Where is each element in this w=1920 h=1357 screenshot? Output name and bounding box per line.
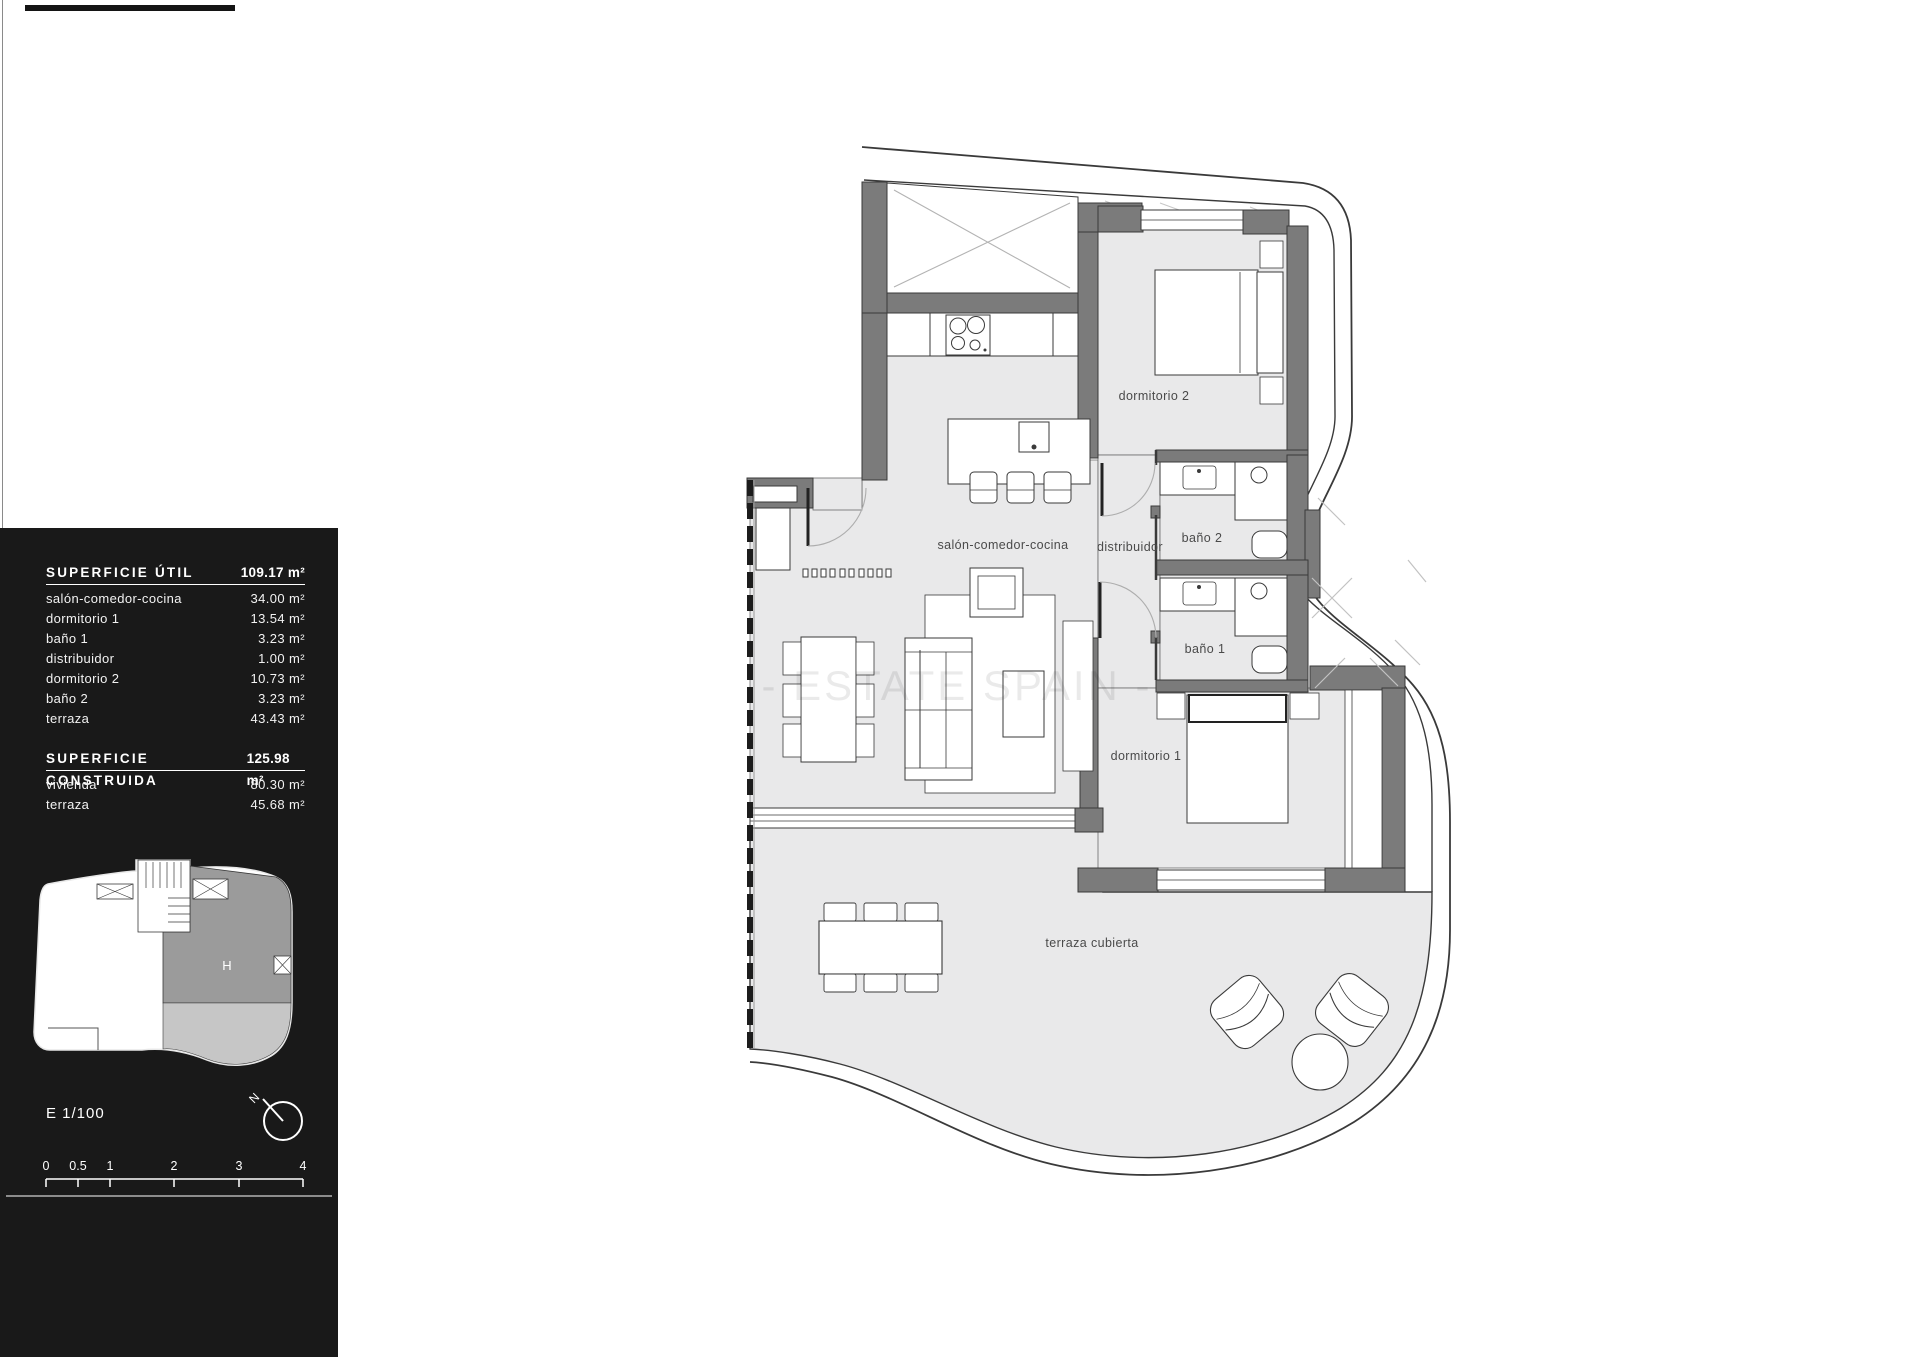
headboard	[1257, 272, 1283, 373]
wall	[1075, 808, 1103, 832]
scale-bar: 0 0.5 1 2 3 4	[6, 1159, 332, 1196]
distribuidor-floor	[1098, 455, 1160, 688]
shower	[1235, 462, 1287, 520]
chair	[824, 974, 856, 992]
wardrobe	[1345, 690, 1382, 868]
stool	[1007, 472, 1034, 503]
key-plan-unit-label: H	[222, 958, 231, 973]
scale-tick-label: 1	[107, 1159, 114, 1173]
chair	[864, 903, 897, 921]
scale-tick-label: 3	[236, 1159, 243, 1173]
nightstand	[1290, 693, 1319, 719]
room-label-distribuidor: distribuidor	[1097, 540, 1163, 554]
entry-closet	[753, 486, 797, 502]
wall	[1156, 450, 1308, 462]
scale-tick-label: 4	[300, 1159, 307, 1173]
panel-graphics: H E 1/100 N 0 0.5 1 2 3 4	[0, 528, 338, 1357]
kitchen	[887, 313, 1078, 356]
wall	[1382, 688, 1405, 870]
key-plan-stairs	[138, 860, 190, 932]
wall	[1156, 560, 1308, 575]
nightstand	[1260, 241, 1283, 268]
hall-closet	[756, 508, 790, 570]
tv	[978, 576, 1015, 609]
chair	[856, 724, 874, 757]
scale-tick-label: 0.5	[69, 1159, 86, 1173]
chair	[864, 974, 897, 992]
glass-wall-salon	[750, 808, 1075, 828]
stool	[1044, 472, 1071, 503]
room-label-terraza: terraza cubierta	[1045, 936, 1138, 950]
round-table	[1292, 1034, 1348, 1090]
chair	[905, 974, 938, 992]
headboard	[1189, 695, 1286, 722]
toilet	[1252, 646, 1287, 673]
wall	[862, 313, 887, 480]
room-label-dormitorio2: dormitorio 2	[1119, 389, 1190, 403]
wall	[1156, 680, 1308, 692]
room-label-dormitorio1: dormitorio 1	[1111, 749, 1182, 763]
floor-plan-page: - ESTATE SPAIN - dormitorio 2 salón-come…	[0, 0, 1920, 1357]
wall	[1078, 868, 1158, 892]
wall	[1098, 206, 1143, 232]
wall	[1287, 226, 1308, 455]
room-label-bano1: baño 1	[1185, 642, 1226, 656]
wall	[1287, 575, 1308, 680]
scale-text: E 1/100	[46, 1105, 105, 1122]
wall	[1325, 868, 1405, 892]
area-panel: SUPERFICIE ÚTIL 109.17 m² salón-comedor-…	[0, 528, 338, 1357]
watermark: - ESTATE SPAIN -	[761, 662, 1152, 709]
wall	[1243, 210, 1289, 234]
exterior-hatch	[1312, 498, 1426, 688]
north-letter: N	[246, 1090, 262, 1106]
terrace-table	[819, 921, 942, 974]
bed	[1155, 270, 1258, 375]
room-label-salon: salón-comedor-cocina	[938, 538, 1069, 552]
nightstand	[1260, 377, 1283, 404]
chair	[783, 724, 801, 757]
wall	[862, 182, 887, 313]
room-label-bano2: baño 2	[1182, 531, 1223, 545]
nightstand	[1157, 693, 1185, 719]
entry-floor	[813, 478, 862, 510]
faucet	[1032, 445, 1037, 450]
scale-tick-label: 0	[43, 1159, 50, 1173]
north-arrow: N	[246, 1090, 302, 1140]
stool	[970, 472, 997, 503]
key-plan: H	[34, 860, 292, 1065]
scale-tick-label: 2	[171, 1159, 178, 1173]
chair	[824, 903, 856, 921]
shower	[1235, 578, 1287, 636]
toilet	[1252, 531, 1287, 558]
sofa	[905, 638, 972, 780]
wall	[887, 293, 1078, 313]
chair	[905, 903, 938, 921]
